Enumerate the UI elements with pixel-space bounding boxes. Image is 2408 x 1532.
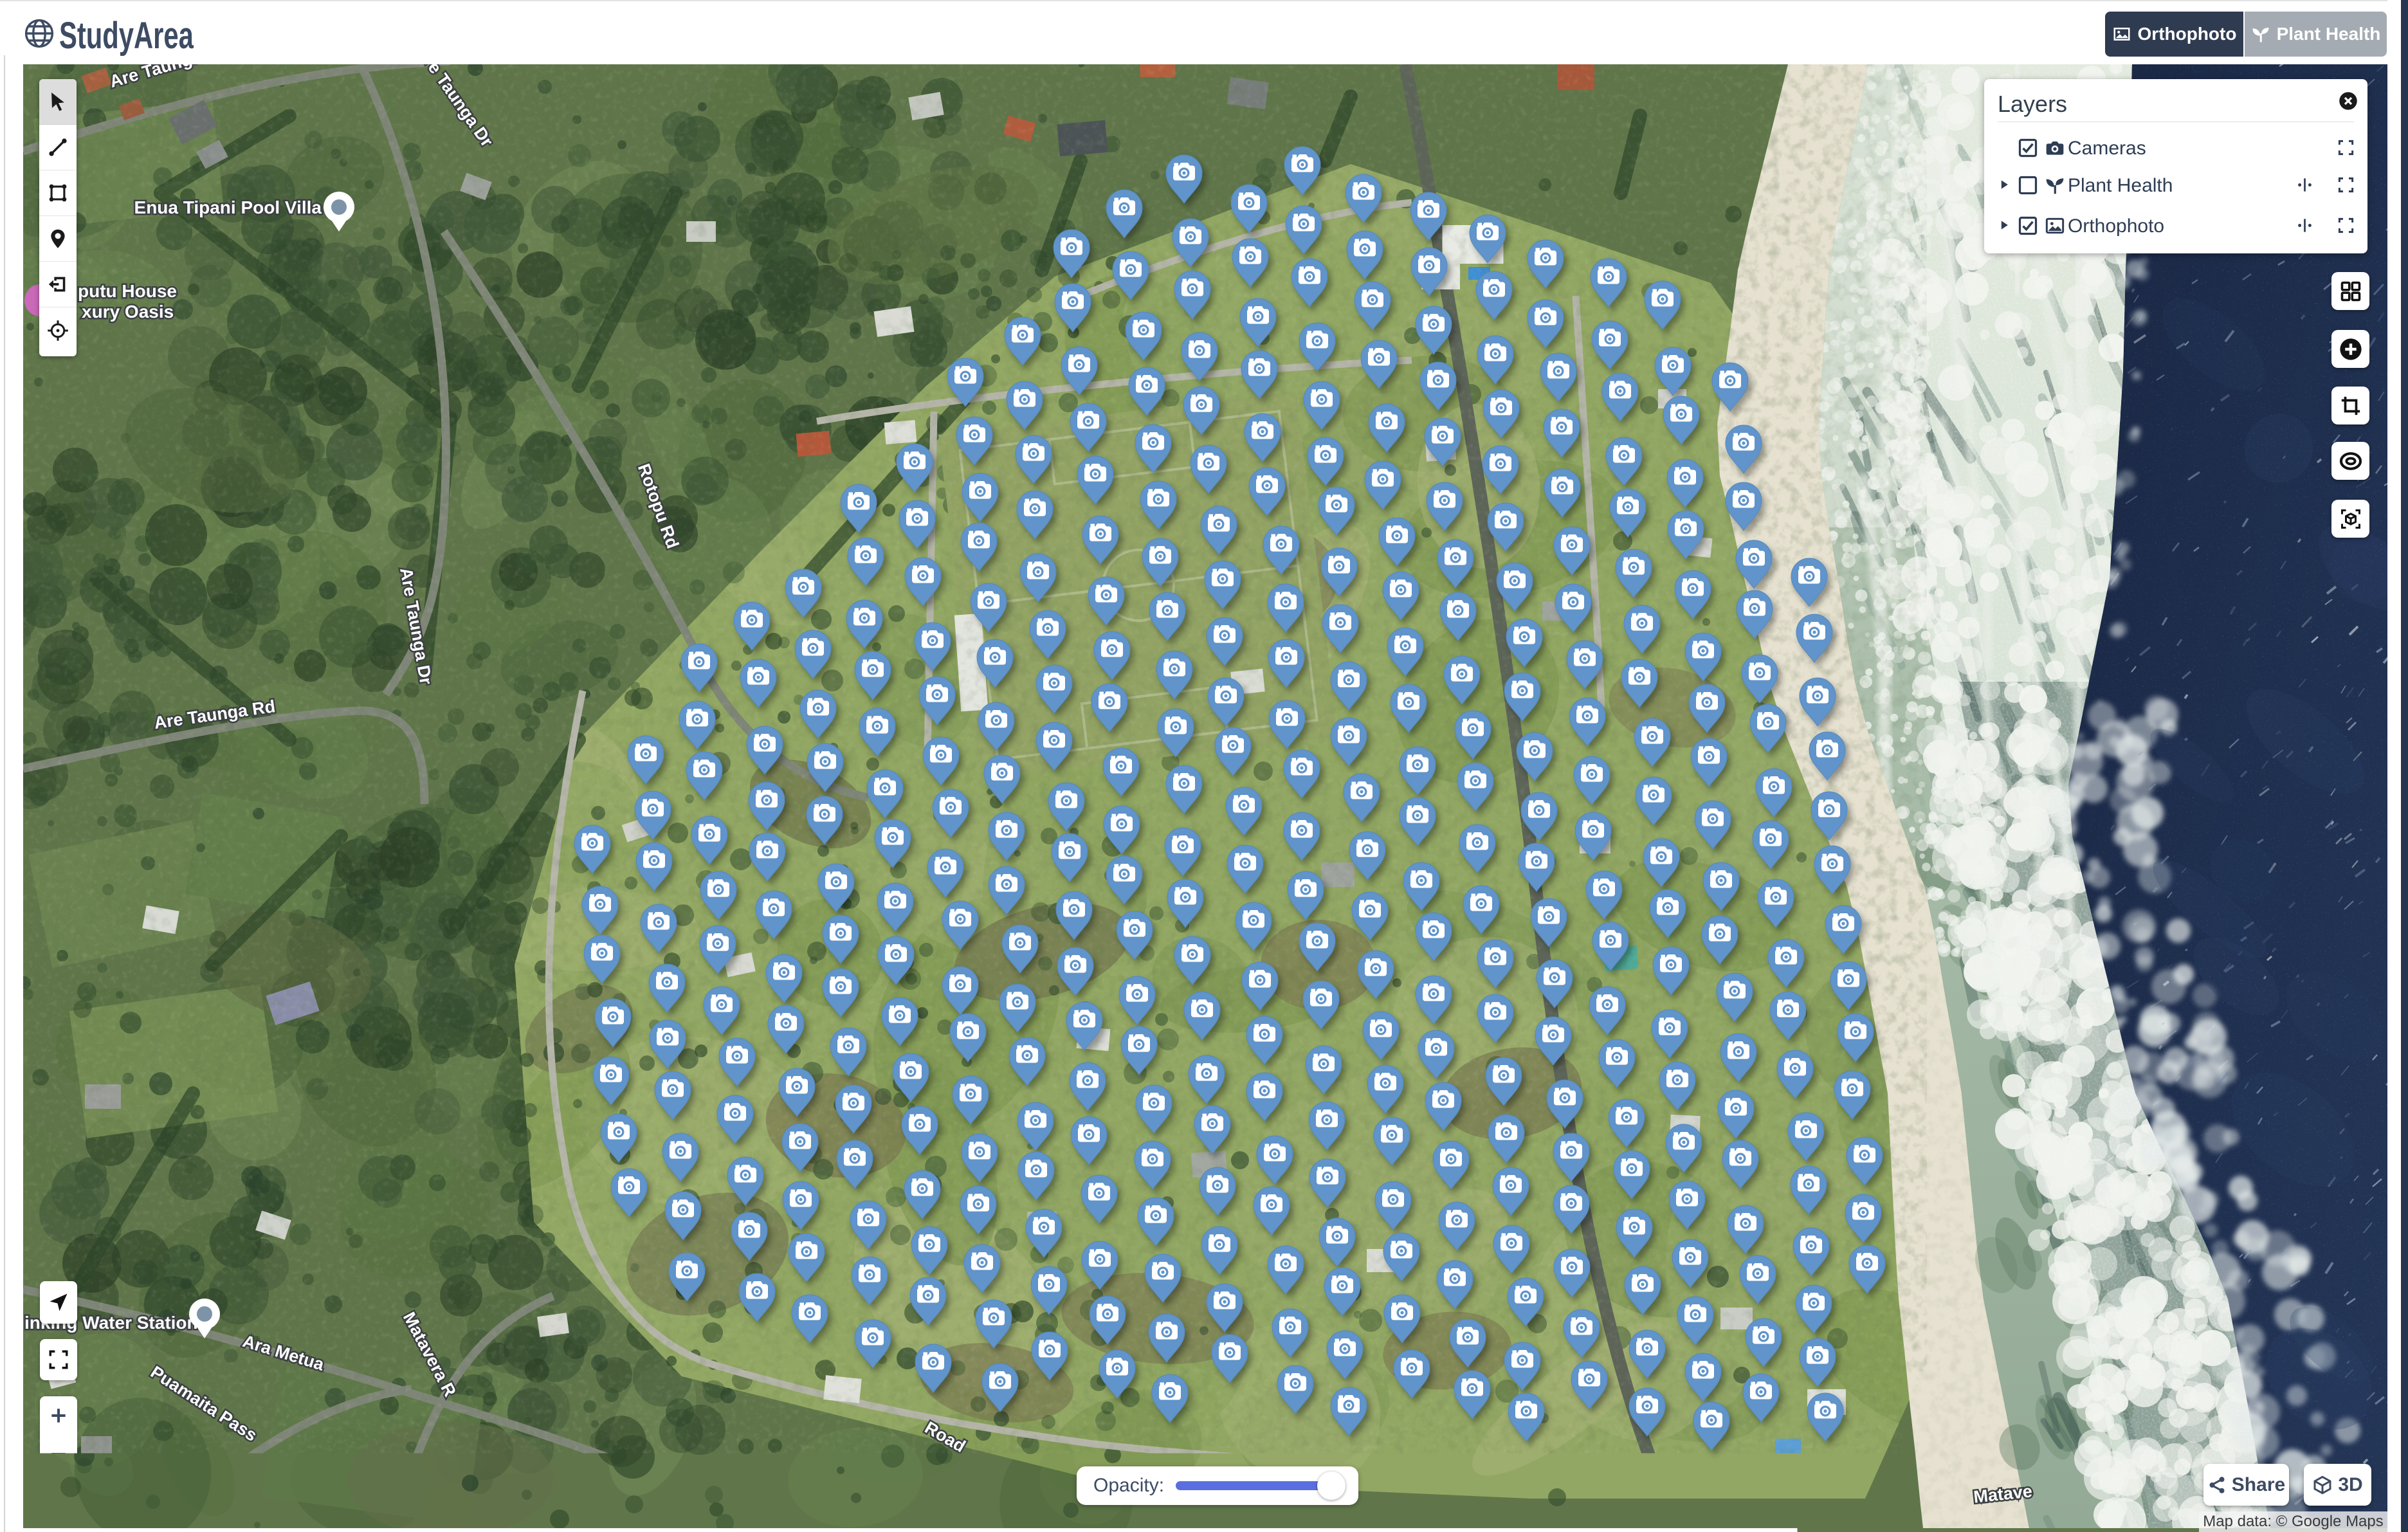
svg-text:Enua Tipani Pool Villa: Enua Tipani Pool Villa [134,197,322,217]
svg-text:xury Oasis: xury Oasis [82,302,174,322]
svg-text:putu House: putu House [78,281,177,301]
